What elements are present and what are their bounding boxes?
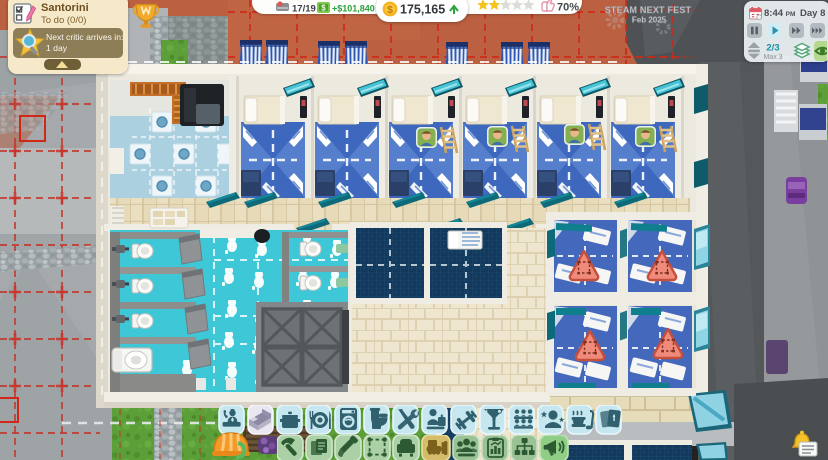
svg-text:Max 3: Max 3 <box>763 54 782 61</box>
svg-text:$: $ <box>387 4 393 16</box>
svg-text:+$101,840: +$101,840 <box>332 4 375 14</box>
svg-text:17/19: 17/19 <box>292 4 316 15</box>
svg-text:STEAM NEXT FEST: STEAM NEXT FEST <box>605 5 692 15</box>
svg-text:2/3: 2/3 <box>766 43 779 54</box>
svg-text:70%: 70% <box>557 2 579 14</box>
svg-text:$: $ <box>321 4 326 13</box>
svg-text:175,165: 175,165 <box>400 3 445 17</box>
svg-text:Feb 2025: Feb 2025 <box>632 16 667 25</box>
